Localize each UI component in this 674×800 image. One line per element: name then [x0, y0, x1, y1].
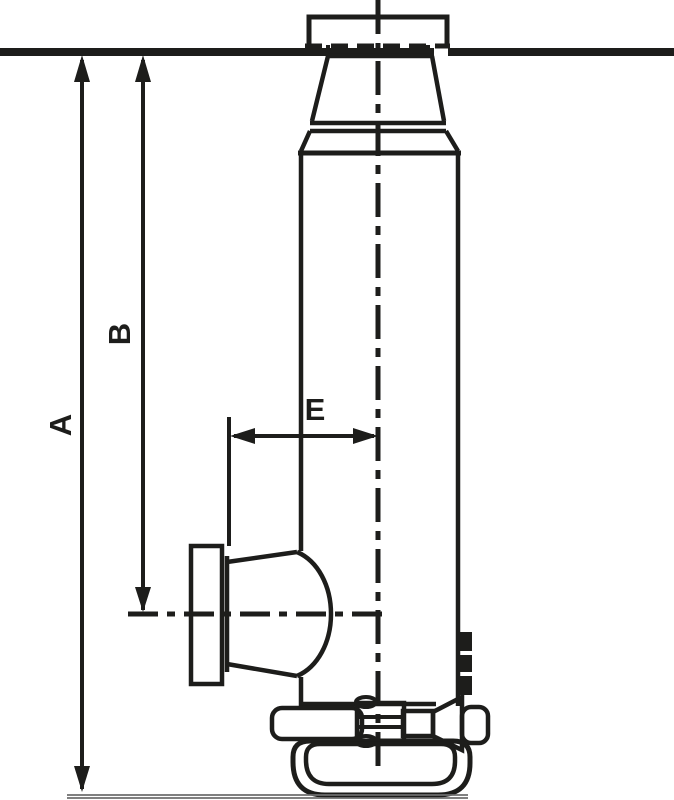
base-foot-outer: [293, 741, 470, 795]
valve-stem: [403, 711, 433, 736]
arrow-down-icon: [135, 587, 151, 612]
technical-drawing-canvas: A B E: [0, 0, 674, 800]
arrow-right-icon: [353, 428, 378, 444]
side-brand-mark: [459, 632, 472, 695]
arrow-up-icon: [74, 55, 90, 82]
dimension-label-e: E: [295, 389, 335, 429]
arrow-left-icon: [230, 428, 255, 444]
dimension-label-a: A: [40, 405, 80, 445]
drawing-linework: [0, 0, 674, 800]
release-knob: [462, 707, 488, 743]
dimension-e: [229, 417, 378, 546]
arrow-up-icon: [135, 55, 151, 82]
dimension-label-b: B: [99, 314, 139, 354]
arrow-down-icon: [74, 766, 90, 792]
handle-sleeve: [272, 708, 362, 739]
